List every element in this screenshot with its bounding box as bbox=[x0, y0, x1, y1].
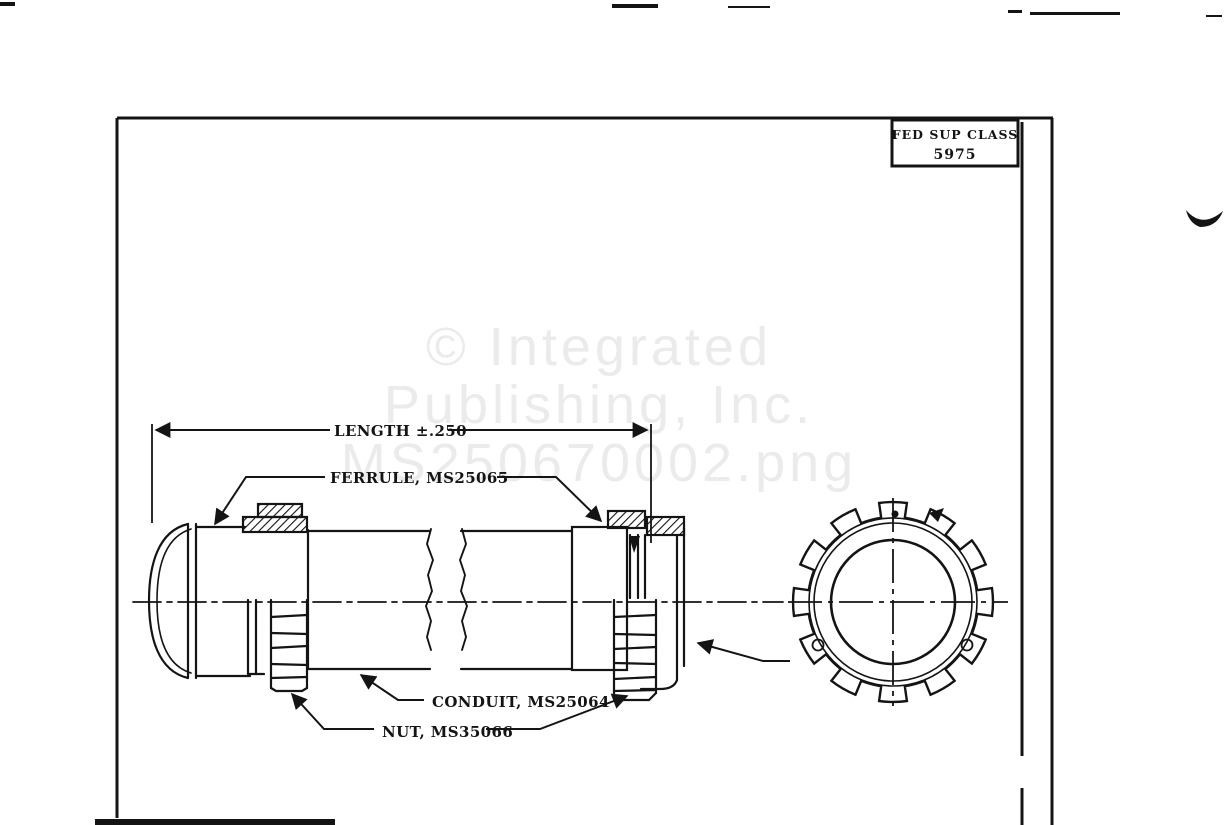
ferrule-right-hatch bbox=[608, 511, 645, 528]
nut-label: NUT, MS35066 bbox=[382, 723, 513, 741]
scan-artifact bbox=[612, 4, 658, 8]
conduit-label: CONDUIT, MS25064 bbox=[432, 693, 610, 711]
scan-artifact bbox=[0, 2, 15, 6]
sheet-border bbox=[117, 118, 1053, 825]
scanned-drawing-page: © Integrated Publishing, Inc. MS25067000… bbox=[0, 0, 1229, 825]
fed-sup-class-value: 5975 bbox=[934, 147, 977, 163]
fed-sup-class-box: FED SUP CLASS 5975 bbox=[892, 120, 1019, 166]
scan-artifact bbox=[728, 6, 770, 8]
side-view bbox=[133, 504, 783, 700]
scan-artifact bbox=[1008, 10, 1022, 13]
break-line bbox=[426, 529, 433, 650]
leader-conduit bbox=[361, 643, 790, 700]
ferrule-right-hatch bbox=[647, 517, 684, 535]
conduit-body bbox=[308, 529, 572, 669]
top-lug-dot bbox=[892, 511, 899, 518]
conduit-assembly-drawing: FED SUP CLASS 5975 bbox=[0, 0, 1229, 825]
nut-left bbox=[271, 600, 307, 691]
fed-sup-class-label: FED SUP CLASS bbox=[892, 127, 1019, 142]
ferrule-left-hatch bbox=[243, 517, 307, 532]
break-line bbox=[460, 529, 467, 650]
scan-artifact bbox=[1186, 210, 1223, 227]
ferrule-left-hatch bbox=[258, 504, 302, 517]
ferrule-label: FERRULE, MS25065 bbox=[330, 469, 509, 487]
end-view bbox=[788, 498, 1008, 706]
scan-artifact bbox=[1206, 15, 1222, 17]
scan-artifact bbox=[95, 819, 335, 825]
nut-right bbox=[614, 600, 656, 700]
length-label: LENGTH ±.250 bbox=[334, 422, 467, 440]
scan-artifact bbox=[1030, 12, 1120, 15]
